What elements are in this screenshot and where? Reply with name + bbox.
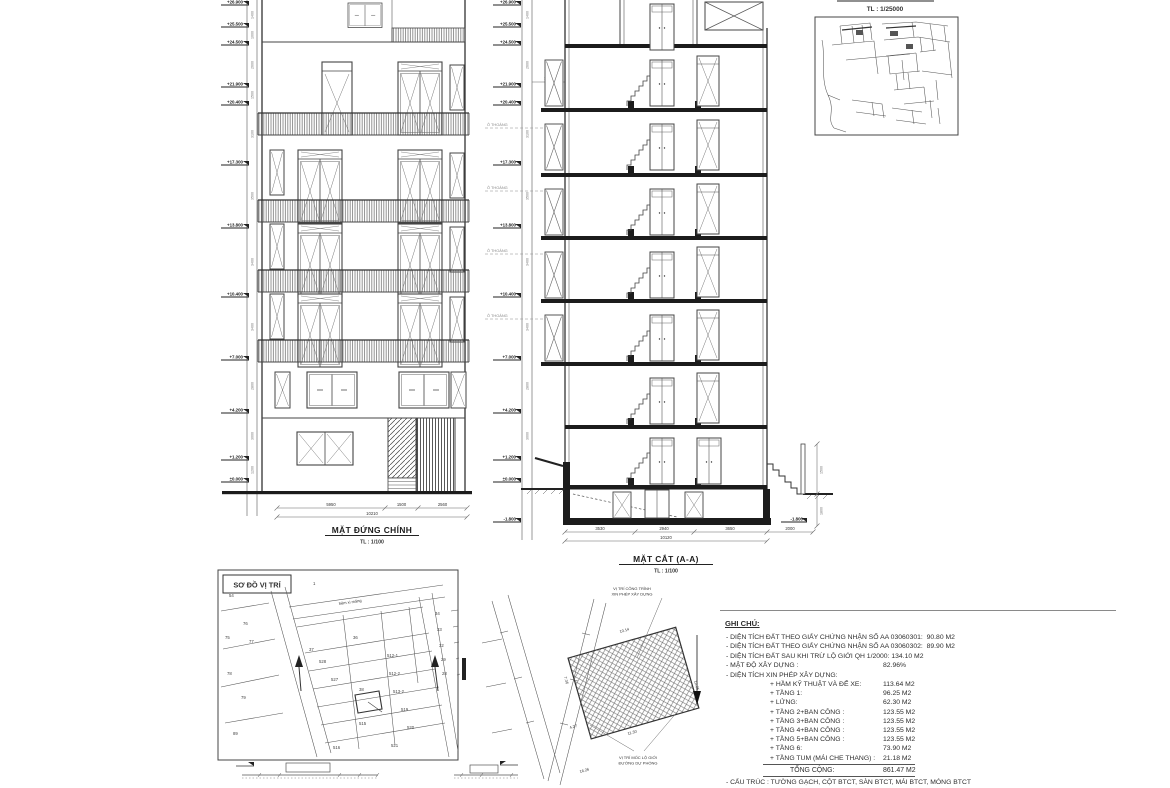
svg-text:+26.900: +26.900 (227, 0, 244, 5)
entry-door (388, 418, 416, 492)
ground-floor-window (297, 432, 353, 465)
roof-truss (705, 2, 763, 30)
level-marker: -1.800 (493, 517, 521, 523)
level-marker: +7.000 (221, 355, 249, 361)
level-marker: +4.200 (493, 408, 521, 414)
area-row: + TẦNG TUM (MÁI CHE THANG) :21.18 M2 (770, 754, 1116, 763)
svg-text:+24.500: +24.500 (227, 40, 244, 45)
svg-text:2560: 2560 (438, 502, 448, 507)
svg-text:527: 527 (331, 677, 339, 682)
svg-text:+7.000: +7.000 (502, 355, 516, 360)
svg-text:1800: 1800 (820, 507, 824, 515)
svg-text:3500: 3500 (251, 192, 255, 200)
svg-text:32: 32 (439, 643, 444, 648)
level-marker: -1.800 (781, 517, 807, 523)
elevation-scale: TL : 1/100 (360, 540, 384, 546)
area-row: + TẦNG 5+BAN CÔNG :123.55 M2 (770, 735, 1116, 744)
bottom-detail-fragments (228, 753, 520, 785)
svg-text:+21.900: +21.900 (500, 82, 517, 87)
section-building: 1500 1800 -1.800 (521, 0, 833, 529)
note-line: - DIỆN TÍCH ĐẤT THEO GIẤY CHỨNG NHẬN SỐ … (726, 642, 1116, 651)
area-row: + HẦM KỸ THUẬT VÀ ĐỂ XE:113.64 M2 (770, 680, 1116, 689)
level-marker: +26.900 (493, 0, 521, 5)
svg-text:3400: 3400 (526, 323, 530, 331)
svg-text:512-1: 512-1 (387, 653, 399, 658)
svg-text:+21.900: +21.900 (227, 82, 244, 87)
svg-text:VỊ TRÍ MỐC LỘ GIỚI: VỊ TRÍ MỐC LỘ GIỚI (619, 755, 657, 760)
detail-fragment (236, 762, 379, 778)
svg-text:ĐƯỜNG DỰ PHÓNG: ĐƯỜNG DỰ PHÓNG (619, 761, 658, 766)
svg-text:528: 528 (319, 659, 327, 664)
level-marker: ±0.000 (493, 477, 521, 483)
area-row: + TẦNG 3+BAN CÔNG :123.55 M2 (770, 717, 1116, 726)
level-marker: +24.500 (493, 40, 521, 46)
note-line: - DIỆN TÍCH ĐẤT THEO GIẤY CHỨNG NHẬN SỐ … (726, 633, 1116, 642)
notes-heading: GHI CHÚ: (725, 619, 1116, 628)
svg-text:5950: 5950 (326, 502, 336, 507)
svg-text:519: 519 (401, 707, 409, 712)
level-marker: +21.900 (221, 82, 249, 88)
svg-text:512-2: 512-2 (389, 671, 401, 676)
svg-text:2600: 2600 (526, 61, 530, 69)
svg-text:±0.000: ±0.000 (503, 477, 517, 482)
svg-text:79: 79 (241, 695, 246, 700)
section-title: MẶT CẮT (A-A) (633, 554, 699, 564)
svg-text:3530: 3530 (595, 526, 605, 531)
level-marker: +13.800 (493, 223, 521, 229)
site-plan-title: SƠ ĐỒ VỊ TRÍ (233, 580, 281, 590)
svg-text:±0.000: ±0.000 (230, 477, 244, 482)
svg-text:3500: 3500 (526, 192, 530, 200)
svg-text:2940: 2940 (659, 526, 669, 531)
svg-text:4.27: 4.27 (569, 723, 578, 730)
map-scale: TL : 1/25000 (867, 6, 904, 13)
svg-text:Ô THOÁNG: Ô THOÁNG (487, 122, 508, 127)
section-scale: TL : 1/100 (654, 569, 678, 575)
total-value: 861.47 M2 (883, 766, 916, 776)
note-line: - DIỆN TÍCH ĐẤT SAU KHI TRỪ LỘ GIỚI QH 1… (726, 652, 1116, 661)
svg-text:1200: 1200 (251, 466, 255, 474)
svg-text:3650: 3650 (725, 526, 735, 531)
total-label: TỔNG CỘNG: (790, 766, 883, 776)
svg-text:+4.200: +4.200 (229, 408, 243, 413)
area-row: + TẦNG 4+BAN CÔNG :123.55 M2 (770, 726, 1116, 735)
elevation-building (222, 0, 472, 494)
svg-text:3000: 3000 (251, 432, 255, 440)
svg-text:3400: 3400 (251, 258, 255, 266)
elevation-title: MẶT ĐỨNG CHÍNH (332, 524, 412, 535)
note-line: - DIỆN TÍCH XIN PHÉP XÂY DỰNG: (726, 671, 1116, 680)
svg-text:521: 521 (391, 743, 399, 748)
level-marker: +20.400 (493, 100, 521, 106)
svg-text:36: 36 (353, 635, 358, 640)
svg-text:+24.500: +24.500 (500, 40, 517, 45)
site-plan: SƠ ĐỒ VỊ TRÍ 1 54 76 75 77 78 79 89 37 3… (213, 563, 469, 765)
structure-note: - CẤU TRÚC : TƯỜNG GẠCH, CỘT BTCT, SÀN B… (726, 778, 1116, 787)
svg-text:37: 37 (309, 647, 314, 652)
svg-text:VỊ TRÍ CÔNG TRÌNH: VỊ TRÍ CÔNG TRÌNH (613, 586, 651, 591)
svg-text:520: 520 (407, 725, 415, 730)
svg-text:10.14: 10.14 (619, 626, 631, 634)
density-value: 82.96% (883, 661, 906, 670)
svg-text:3400: 3400 (526, 258, 530, 266)
area-row: + LỬNG:62.30 M2 (770, 698, 1116, 707)
svg-text:+1.200: +1.200 (502, 455, 516, 460)
area-row: + TẦNG 1:96.25 M2 (770, 689, 1116, 698)
svg-text:XIN PHÉP XÂY DỰNG: XIN PHÉP XÂY DỰNG (611, 592, 652, 597)
svg-text:77: 77 (249, 639, 254, 644)
svg-text:+17.300: +17.300 (227, 160, 244, 165)
detail-fragment (454, 761, 518, 778)
svg-text:+20.400: +20.400 (500, 100, 517, 105)
svg-text:-1.800: -1.800 (504, 517, 517, 522)
note-density-row: - MẬT ĐỘ XÂY DỰNG : 82.96% (726, 661, 1116, 670)
density-label: - MẬT ĐỘ XÂY DỰNG : (726, 661, 883, 670)
svg-text:75: 75 (225, 635, 230, 640)
svg-text:3000: 3000 (526, 432, 530, 440)
svg-text:10120: 10120 (660, 535, 672, 540)
level-marker: +10.400 (221, 292, 249, 298)
svg-text:515: 515 (359, 721, 367, 726)
svg-text:+13.800: +13.800 (227, 223, 244, 228)
level-marker: +24.500 (221, 40, 249, 46)
svg-text:54: 54 (229, 593, 234, 598)
svg-text:1400: 1400 (251, 11, 255, 19)
subject-plot (568, 627, 699, 739)
svg-text:76: 76 (243, 621, 248, 626)
elevation-dimensions: 5950 1500 2560 10210 (275, 502, 470, 520)
svg-text:16.26: 16.26 (579, 766, 590, 773)
svg-text:2600: 2600 (251, 61, 255, 69)
svg-text:29: 29 (441, 657, 446, 662)
svg-text:Ô THOÁNG: Ô THOÁNG (487, 248, 508, 253)
location-map: TL : 1/25000 (812, 0, 964, 142)
level-marker: +1.200 (221, 455, 249, 461)
level-marker: +25.500 (221, 22, 249, 28)
svg-text:+13.800: +13.800 (500, 223, 517, 228)
svg-text:2000: 2000 (785, 526, 795, 531)
svg-text:+10.400: +10.400 (227, 292, 244, 297)
svg-text:78: 78 (227, 671, 232, 676)
level-marker: +1.200 (493, 455, 521, 461)
ground-line (222, 491, 472, 494)
svg-text:513-2: 513-2 (393, 689, 405, 694)
svg-text:Ô THOÁNG: Ô THOÁNG (487, 313, 508, 318)
svg-text:38: 38 (359, 687, 364, 692)
north-arrow (693, 635, 701, 705)
section-dimensions: 3530 2940 3650 2000 10120 (563, 526, 816, 544)
blueprint-sheet: +26.900 +25.500 +24.500 +21.900 +20.400 … (0, 0, 1170, 785)
svg-text:2800: 2800 (526, 382, 530, 390)
level-marker: ±0.000 (221, 477, 249, 483)
svg-text:1500: 1500 (251, 91, 255, 99)
level-marker: +26.900 (221, 0, 249, 5)
svg-text:28: 28 (442, 671, 447, 676)
level-marker: +10.400 (493, 292, 521, 298)
level-marker: +17.300 (493, 160, 521, 166)
svg-text:1000: 1000 (251, 31, 255, 39)
section-title-block: MẶT CẮT (A-A) TL : 1/100 (619, 554, 713, 575)
svg-text:10210: 10210 (366, 511, 378, 516)
svg-text:3400: 3400 (251, 323, 255, 331)
notes-divider (763, 764, 915, 765)
svg-text:+25.500: +25.500 (500, 22, 517, 27)
level-marker: +4.200 (221, 408, 249, 414)
svg-text:-1.800: -1.800 (791, 517, 804, 522)
svg-text:3100: 3100 (526, 130, 530, 138)
svg-text:11.30: 11.30 (627, 728, 638, 736)
svg-text:+7.000: +7.000 (229, 355, 243, 360)
svg-text:+26.900: +26.900 (500, 0, 517, 5)
svg-text:1500: 1500 (397, 502, 407, 507)
area-row: + TẦNG 2+BAN CÔNG :123.55 M2 (770, 708, 1116, 717)
level-marker: +7.000 (493, 355, 521, 361)
svg-text:34: 34 (435, 611, 440, 616)
level-marker: +25.500 (493, 22, 521, 28)
svg-text:+10.400: +10.400 (500, 292, 517, 297)
svg-text:2800: 2800 (251, 382, 255, 390)
svg-text:+25.500: +25.500 (227, 22, 244, 27)
elevation-title-block: MẶT ĐỨNG CHÍNH TL : 1/100 (325, 524, 419, 546)
elevation-drawing: +26.900 +25.500 +24.500 +21.900 +20.400 … (215, 0, 505, 550)
svg-text:+1.200: +1.200 (229, 455, 243, 460)
svg-text:89: 89 (233, 731, 238, 736)
svg-text:33: 33 (437, 627, 442, 632)
svg-text:7.36: 7.36 (563, 676, 570, 685)
svg-text:+4.200: +4.200 (502, 408, 516, 413)
svg-text:516: 516 (333, 745, 341, 750)
total-row: TỔNG CỘNG: 861.47 M2 (790, 766, 1116, 776)
level-marker: +21.900 (493, 82, 521, 88)
notes-block: GHI CHÚ: - DIỆN TÍCH ĐẤT THEO GIẤY CHỨNG… (720, 610, 1116, 788)
notes-divider (763, 776, 915, 777)
svg-text:1400: 1400 (526, 11, 530, 19)
level-marker: +13.800 (221, 223, 249, 229)
level-marker: +20.400 (221, 100, 249, 106)
svg-text:+20.400: +20.400 (227, 100, 244, 105)
svg-text:1500: 1500 (820, 466, 824, 474)
svg-text:3100: 3100 (251, 130, 255, 138)
area-row: + TẦNG 6:73.90 M2 (770, 744, 1116, 753)
svg-text:Ô THOÁNG: Ô THOÁNG (487, 185, 508, 190)
elevation-level-ruler: +26.900 +25.500 +24.500 +21.900 +20.400 … (221, 0, 257, 516)
level-marker: +17.300 (221, 160, 249, 166)
garage-door (417, 418, 455, 492)
exterior-stair (767, 464, 803, 494)
svg-text:+17.300: +17.300 (500, 160, 517, 165)
